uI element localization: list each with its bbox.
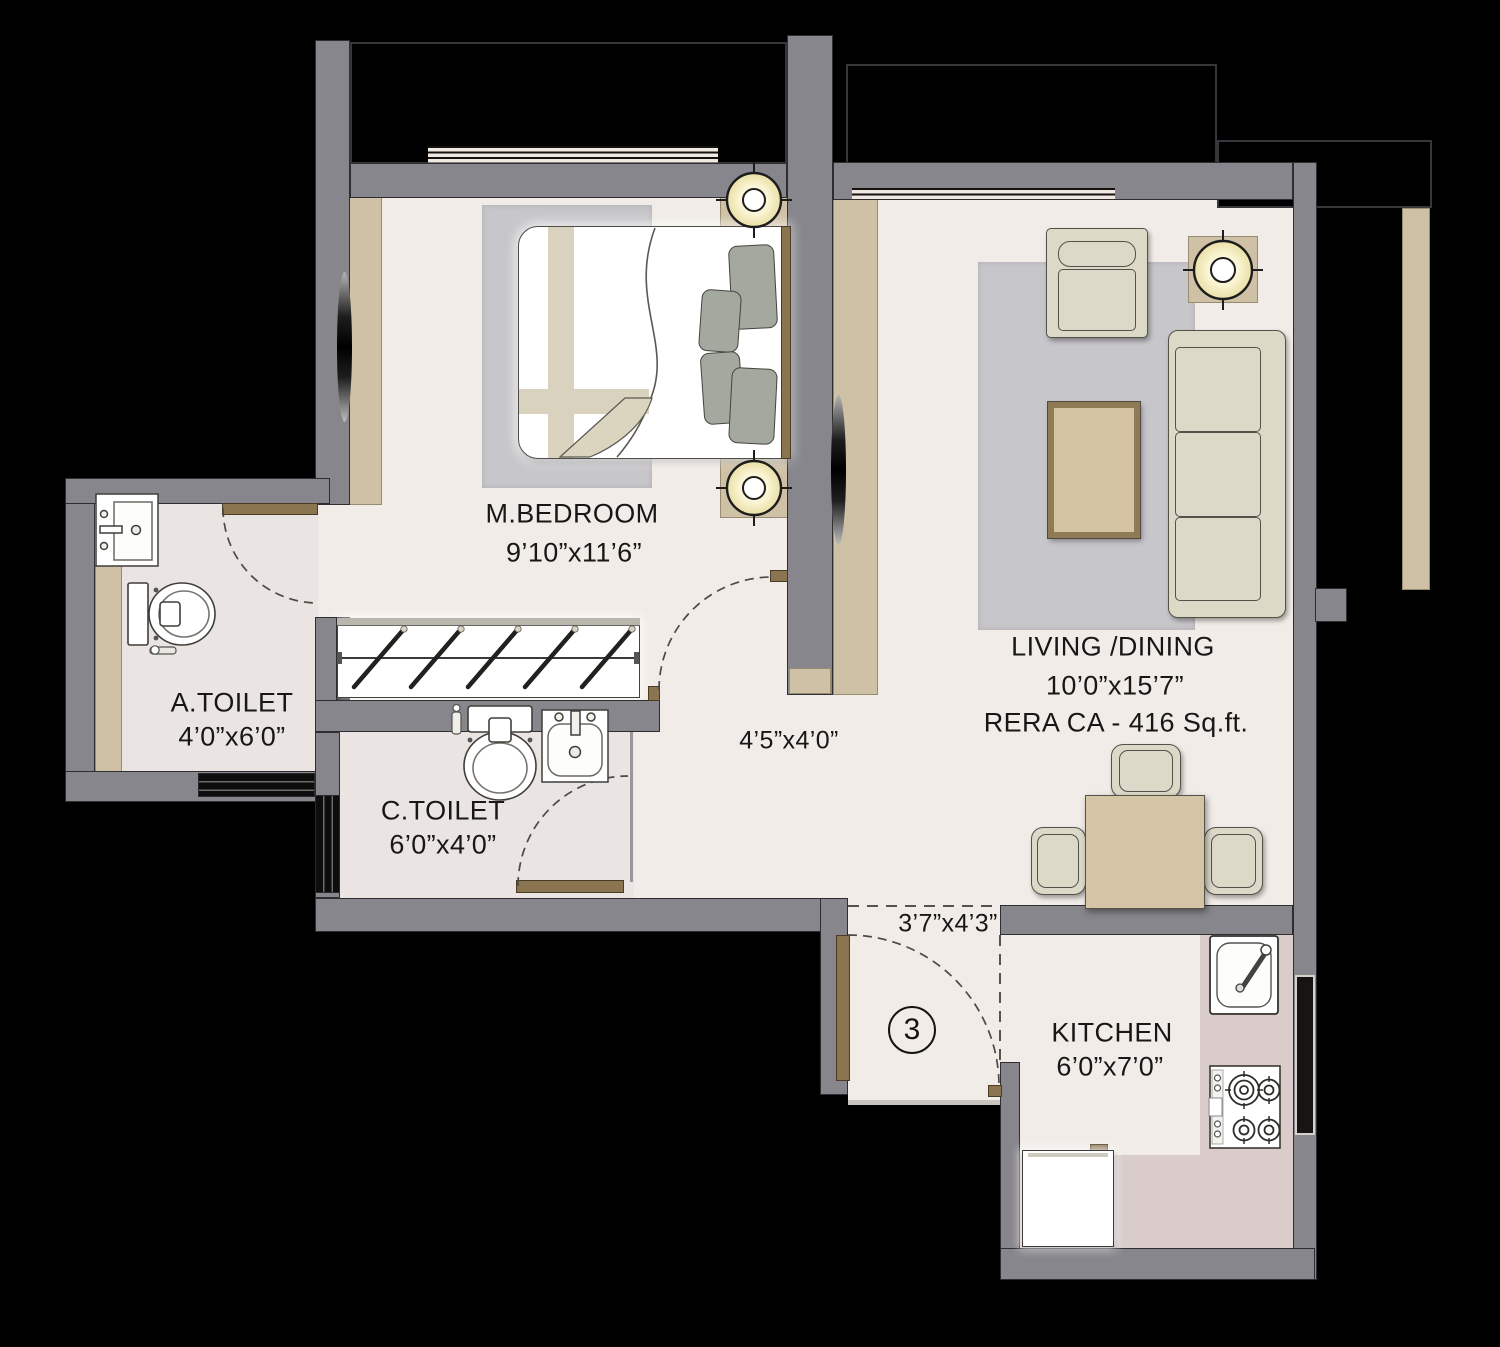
foyer-dims: 3’7”x4’3” <box>898 910 997 939</box>
bed-blanket-icon <box>560 228 657 457</box>
attached-toilet-door-arc <box>223 508 318 603</box>
common-toilet-door-arc <box>518 776 628 886</box>
common-toilet-label: C.TOILET <box>381 796 505 827</box>
bedroom-label: M.BEDROOM <box>485 499 658 530</box>
ceiling-light-icon <box>716 450 792 526</box>
passage-dims: 4’5”x4’0” <box>739 727 838 756</box>
washbasin-icon <box>96 494 158 566</box>
bedroom-door-arc <box>659 577 772 690</box>
floor-plan: M.BEDROOM 9’10”x11’6” LIVING /DINING 10’… <box>0 0 1500 1347</box>
common-toilet-dims: 6’0”x4’0” <box>389 830 496 861</box>
washbasin-icon <box>542 710 608 782</box>
bedroom-dims: 9’10”x11’6” <box>506 538 642 569</box>
living-dims: 10’0”x15’7” <box>1046 671 1184 702</box>
toilet-icon <box>128 583 215 654</box>
plan-symbols-layer <box>0 0 1500 1347</box>
living-label: LIVING /DINING <box>1011 632 1215 663</box>
kitchen-label: KITCHEN <box>1051 1018 1172 1049</box>
ceiling-light-icon <box>716 162 792 238</box>
ceiling-light-icon <box>1183 230 1263 310</box>
kitchen-sink-icon <box>1210 936 1278 1014</box>
gas-hob-icon <box>1209 1066 1280 1148</box>
kitchen-dims: 6’0”x7’0” <box>1056 1052 1163 1083</box>
attached-toilet-label: A.TOILET <box>171 688 294 719</box>
rera-area-label: RERA CA - 416 Sq.ft. <box>984 708 1249 739</box>
unit-number: 3 <box>904 1013 921 1047</box>
wardrobe-hangers-icon <box>337 626 639 687</box>
unit-number-badge: 3 <box>888 1006 936 1054</box>
toilet-icon <box>452 705 536 801</box>
attached-toilet-dims: 4’0”x6’0” <box>178 722 285 753</box>
